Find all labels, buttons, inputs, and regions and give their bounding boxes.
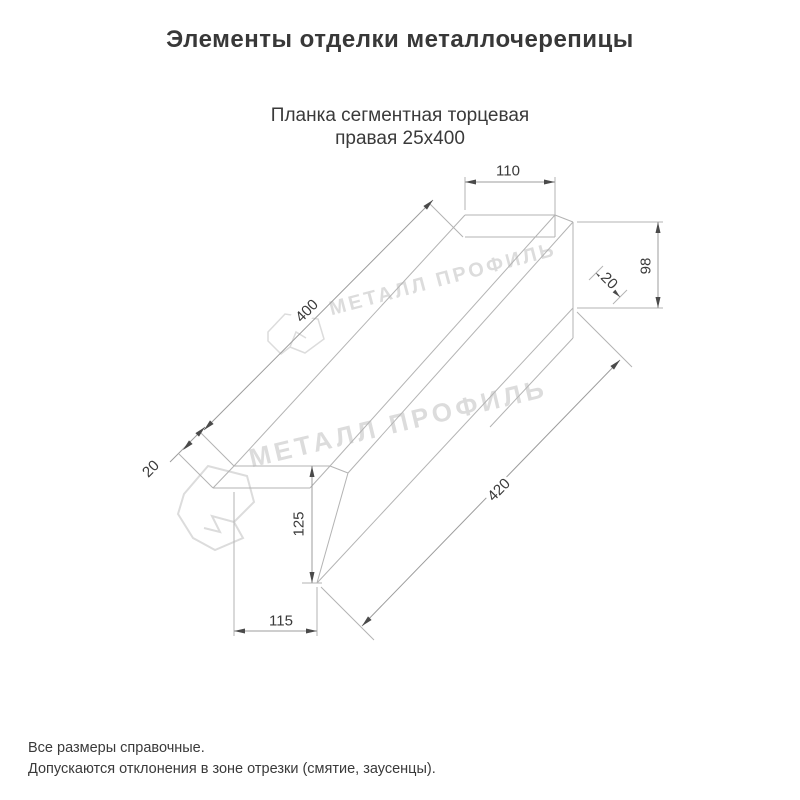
dim-label-left-end-height: 125 bbox=[291, 509, 308, 538]
technical-drawing bbox=[0, 0, 800, 800]
part-outline bbox=[213, 215, 573, 583]
dim-label-top-width: 110 bbox=[494, 163, 522, 180]
dimension-arrows bbox=[183, 180, 661, 634]
dimension-lines bbox=[170, 182, 658, 631]
dim-label-left-end-width: 115 bbox=[267, 613, 295, 630]
catalog-page: { "page": { "title": "Элементы отделки м… bbox=[0, 0, 800, 800]
metall-profil-logo-lower bbox=[178, 466, 254, 550]
extension-lines bbox=[179, 177, 663, 640]
footnote-dimensions-reference: Все размеры справочные. bbox=[28, 740, 205, 756]
dim-label-right-end-height: 98 bbox=[638, 256, 655, 277]
footnote-cutting-tolerance: Допускаются отклонения в зоне отрезки (с… bbox=[28, 761, 436, 777]
